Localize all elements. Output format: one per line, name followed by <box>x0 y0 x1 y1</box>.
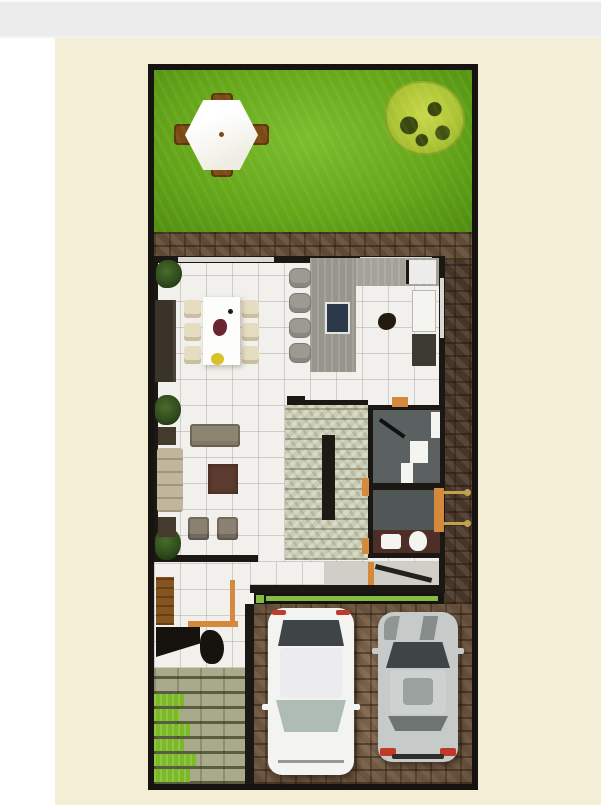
east-wall-lower <box>439 558 445 585</box>
bathroom-door-left <box>362 478 369 496</box>
vanity-strip <box>373 530 440 553</box>
side-mirror <box>456 648 464 654</box>
side-table <box>158 427 176 445</box>
patio-chair-north <box>211 93 233 114</box>
car-roof <box>280 648 342 698</box>
dining-console <box>155 300 176 382</box>
walkway-grass-strip <box>154 769 190 782</box>
bar-stool <box>289 268 311 288</box>
dining-window <box>178 257 274 262</box>
entry-wood-panel <box>156 577 174 625</box>
bathroom-open-door <box>379 418 406 438</box>
door-knob <box>464 489 471 496</box>
bar-stool <box>289 343 311 363</box>
top-gray-bar <box>0 0 601 38</box>
bar-stool <box>289 293 311 313</box>
bathroom-door-left-lower <box>362 538 369 554</box>
hood-shading <box>384 616 452 640</box>
garage-hallway <box>250 562 445 585</box>
patio-chair-south <box>211 156 233 177</box>
taillight <box>272 610 286 615</box>
table-decor-dot <box>228 309 233 314</box>
side-table <box>158 517 176 537</box>
toilet <box>409 531 427 551</box>
dining-chair <box>242 300 259 318</box>
island-cooktop <box>325 302 350 334</box>
hallway-door-post <box>368 562 374 585</box>
left-white-margin <box>0 38 55 805</box>
bathroom-divider-wall <box>373 483 440 490</box>
taillight <box>336 610 350 615</box>
patio-chair-east <box>247 124 269 145</box>
side-mirror <box>352 704 360 710</box>
flower-centerpiece <box>213 319 227 336</box>
side-mirror <box>372 648 380 654</box>
hood-grill-line <box>278 760 344 763</box>
dining-chair <box>242 323 259 341</box>
garage-front-wall <box>250 585 445 593</box>
vanity-sink <box>381 534 401 549</box>
east-wall-window <box>440 278 444 338</box>
armchair <box>217 517 238 540</box>
kitchen-wall-counter <box>356 258 439 286</box>
stair-railing <box>322 435 335 520</box>
staircase <box>285 405 368 560</box>
walkway-grass-strip <box>154 709 180 721</box>
bathroom-door-top <box>392 397 408 407</box>
sunroof <box>403 678 433 705</box>
garage-door-light-bar <box>266 596 438 601</box>
walkway-edge-wall <box>245 604 254 784</box>
walkway-grass-strip <box>154 739 184 751</box>
bathroom-door-right <box>434 488 444 532</box>
coffee-table <box>208 464 238 494</box>
car-roof <box>390 670 446 714</box>
dining-chair <box>184 323 201 341</box>
rear-window <box>388 716 448 731</box>
armchair <box>188 517 209 540</box>
entry-walkway <box>154 668 245 784</box>
windshield <box>386 642 450 668</box>
kitchen-wall-cabinet <box>406 260 436 284</box>
bar-stool <box>289 318 311 338</box>
kitchen-island <box>310 258 356 372</box>
patio-chair-west <box>174 124 196 145</box>
rear-window <box>278 620 344 646</box>
backyard-lawn <box>154 70 472 233</box>
rear-bumper <box>392 754 444 759</box>
silver-car <box>378 612 458 762</box>
dining-chair <box>242 346 259 364</box>
fruit-bowl <box>211 353 224 365</box>
page <box>0 0 601 805</box>
white-car <box>268 608 354 775</box>
loveseat <box>157 448 183 512</box>
umbrella-center-dot <box>219 132 224 137</box>
sofa <box>190 424 240 447</box>
garage-door-light-end <box>256 595 264 603</box>
door-knob-bar <box>444 491 466 494</box>
walkway-grass-strip <box>154 694 184 706</box>
second-bath-floor <box>373 490 440 530</box>
kitchen-dark-cabinet <box>412 334 436 366</box>
door-knob <box>464 520 471 527</box>
bathroom-block <box>368 405 445 558</box>
entry-orange-post <box>230 580 235 622</box>
tree <box>385 81 465 155</box>
bathroom-cabinet <box>401 463 413 483</box>
fridge <box>412 290 436 332</box>
walkway-grass-strip <box>154 724 190 736</box>
patio-table <box>185 100 258 170</box>
walkway-grass-strip <box>154 754 196 766</box>
entry-dark-figure <box>200 630 224 664</box>
floor-plan-image <box>148 64 478 790</box>
shower-tray <box>431 412 440 438</box>
door-knob-bar <box>444 522 466 525</box>
dining-chair <box>184 346 201 364</box>
bathroom-sink-unit <box>410 441 428 463</box>
windshield <box>276 700 346 732</box>
dining-chair <box>184 300 201 318</box>
dining-table <box>203 297 240 365</box>
side-mirror <box>262 704 270 710</box>
